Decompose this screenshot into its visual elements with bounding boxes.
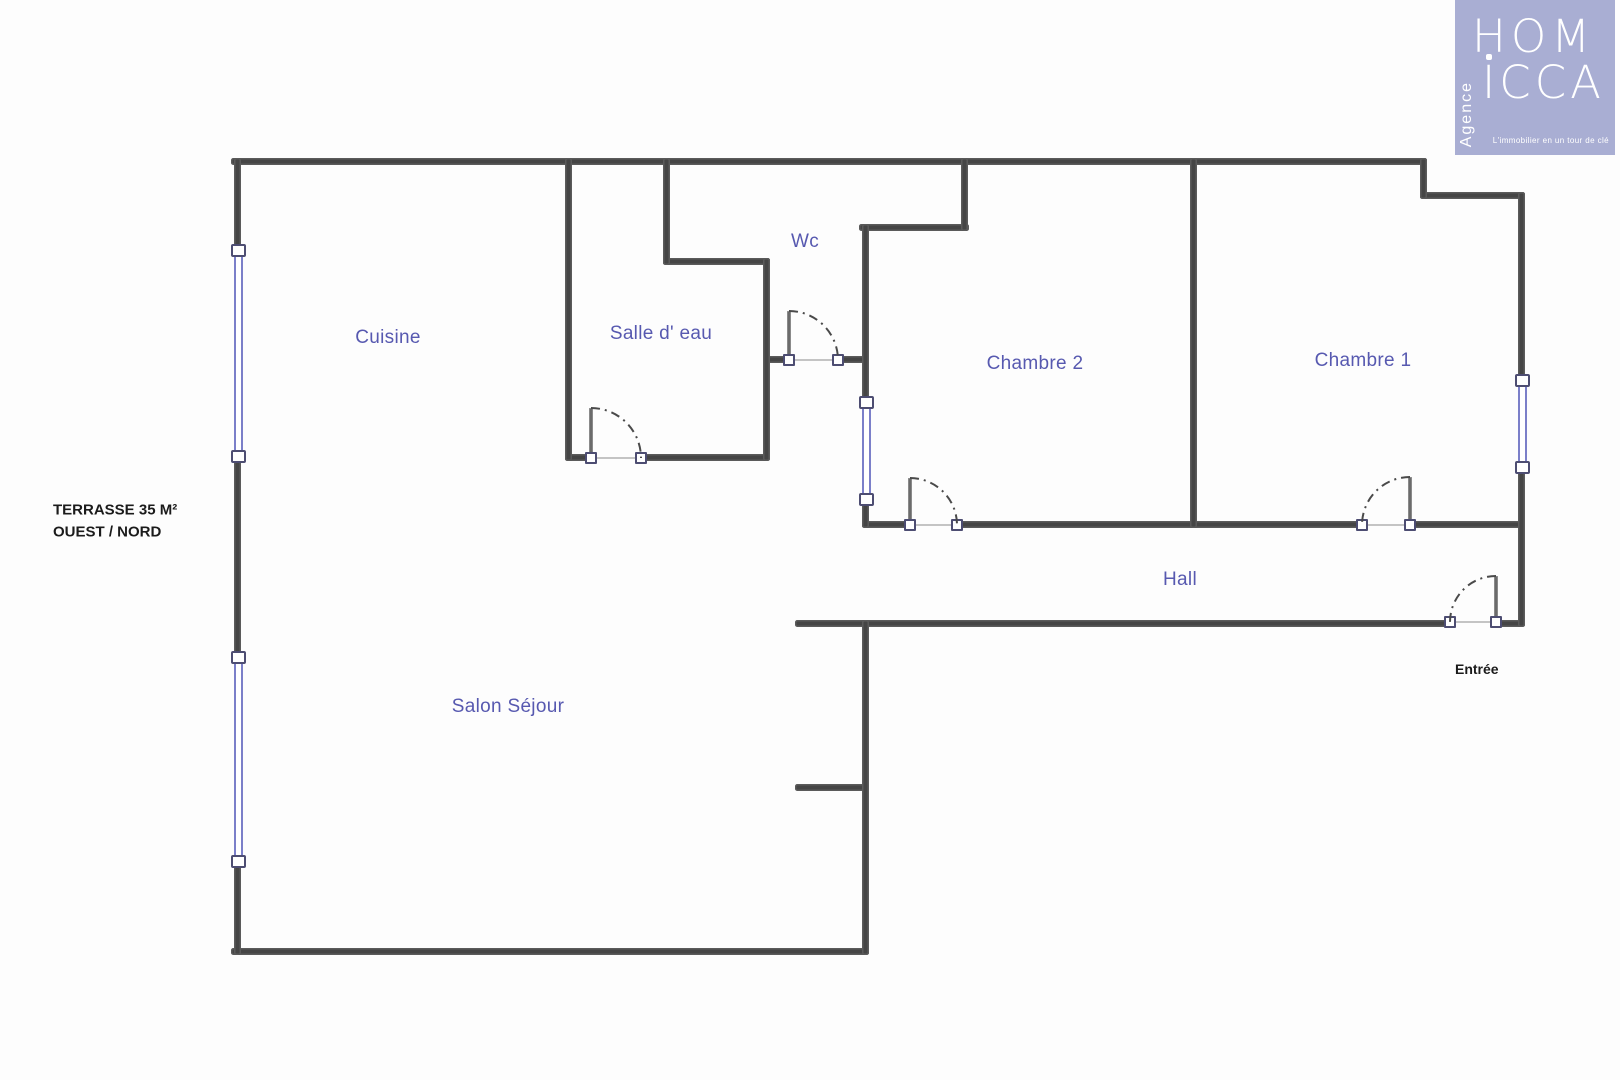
wall-sde-right [763, 258, 770, 461]
label-chambre-1: Chambre 1 [1315, 350, 1412, 372]
door-jamb-chambre1-door [1356, 519, 1368, 531]
door-jamb-salle-deau-door [635, 452, 647, 464]
label-salon: Salon Séjour [452, 696, 564, 718]
door-arc-chambre2-door [910, 478, 957, 525]
wall-left-bottom [234, 864, 241, 955]
window-cap-chambre1-window [1515, 461, 1530, 474]
door-jamb-salle-deau-door [585, 452, 597, 464]
door-leaf-salle-deau-door [589, 408, 593, 455]
wall-chambres-divider [1190, 158, 1197, 528]
window-cap-terrace-window-south [231, 855, 246, 868]
window-terrace-window-south [234, 663, 243, 856]
wall-step-top [1420, 192, 1525, 199]
label-salle-deau: Salle d' eau [610, 323, 712, 345]
label-chambre-2: Chambre 2 [987, 353, 1084, 375]
door-arc-chambre1-door [1362, 477, 1410, 525]
door-jamb-chambre2-door [951, 519, 963, 531]
door-leaf-wc-door [787, 311, 791, 357]
door-leaf-chambre1-door [1408, 477, 1412, 522]
logo-brand-top: HOM [1472, 14, 1595, 59]
wall-chambre2-left-top [862, 224, 869, 400]
window-cap-chambre1-window [1515, 374, 1530, 387]
wall-wc-notch-left [663, 158, 670, 265]
wall-chambre2-notch-v [961, 158, 968, 231]
wall-left-mid [234, 459, 241, 655]
window-terrace-window-north [234, 256, 243, 451]
window-chambre1-window [1518, 386, 1527, 462]
label-terrasse-2: OUEST / NORD [53, 524, 161, 541]
door-jamb-wc-door [832, 354, 844, 366]
door-threshold-salle-deau-door [591, 457, 641, 459]
wall-salon-stub [795, 784, 869, 791]
door-arc-entree-door [1450, 576, 1496, 622]
agency-logo: Agence HOM ICCA L'immobilier en un tour … [1455, 0, 1615, 155]
wall-sde-left [565, 158, 572, 461]
window-cap-terrace-window-north [231, 450, 246, 463]
window-chambre2-inner-window [862, 408, 871, 494]
window-cap-chambre2-inner-window [859, 493, 874, 506]
wall-chambres-bottom-3 [1406, 521, 1525, 528]
wall-bottom [231, 948, 869, 955]
wall-top [231, 158, 1427, 165]
door-threshold-chambre1-door [1362, 524, 1410, 526]
wall-right-top [1518, 192, 1525, 378]
window-cap-terrace-window-south [231, 651, 246, 664]
door-leaf-chambre2-door [908, 478, 912, 522]
label-terrasse-1: TERRASSE 35 M² [53, 502, 177, 519]
wall-hall-bottom-left [795, 620, 1452, 627]
label-entree: Entrée [1455, 661, 1499, 677]
wall-salon-right [862, 620, 869, 955]
wall-sde-bottom-right [639, 454, 770, 461]
door-leaf-entree-door [1494, 576, 1498, 619]
door-jamb-chambre2-door [904, 519, 916, 531]
wall-left-top [234, 158, 241, 248]
door-jamb-entree-door [1490, 616, 1502, 628]
door-arc-wc-door [789, 311, 838, 360]
wall-step-right-v [1420, 158, 1427, 199]
door-jamb-chambre1-door [1404, 519, 1416, 531]
window-cap-chambre2-inner-window [859, 396, 874, 409]
label-wc: Wc [791, 231, 819, 253]
door-threshold-wc-door [789, 359, 838, 361]
wall-chambres-bottom-2 [955, 521, 1364, 528]
logo-vertical-text: Agence [1458, 81, 1476, 147]
door-jamb-wc-door [783, 354, 795, 366]
label-cuisine: Cuisine [355, 327, 420, 349]
wall-wc-notch-bottom [663, 258, 770, 265]
logo-brand-bottom: ICCA [1482, 60, 1605, 105]
wall-right-bottom [1518, 470, 1525, 627]
floor-plan: CuisineSalle d' eauWcChambre 2Chambre 1H… [0, 0, 1620, 1080]
door-threshold-chambre2-door [910, 524, 957, 526]
door-jamb-entree-door [1444, 616, 1456, 628]
door-arc-salle-deau-door [591, 408, 641, 458]
logo-tagline: L'immobilier en un tour de clé [1493, 136, 1609, 145]
label-hall: Hall [1163, 569, 1197, 591]
wall-chambre2-notch [859, 224, 969, 231]
window-cap-terrace-window-north [231, 244, 246, 257]
